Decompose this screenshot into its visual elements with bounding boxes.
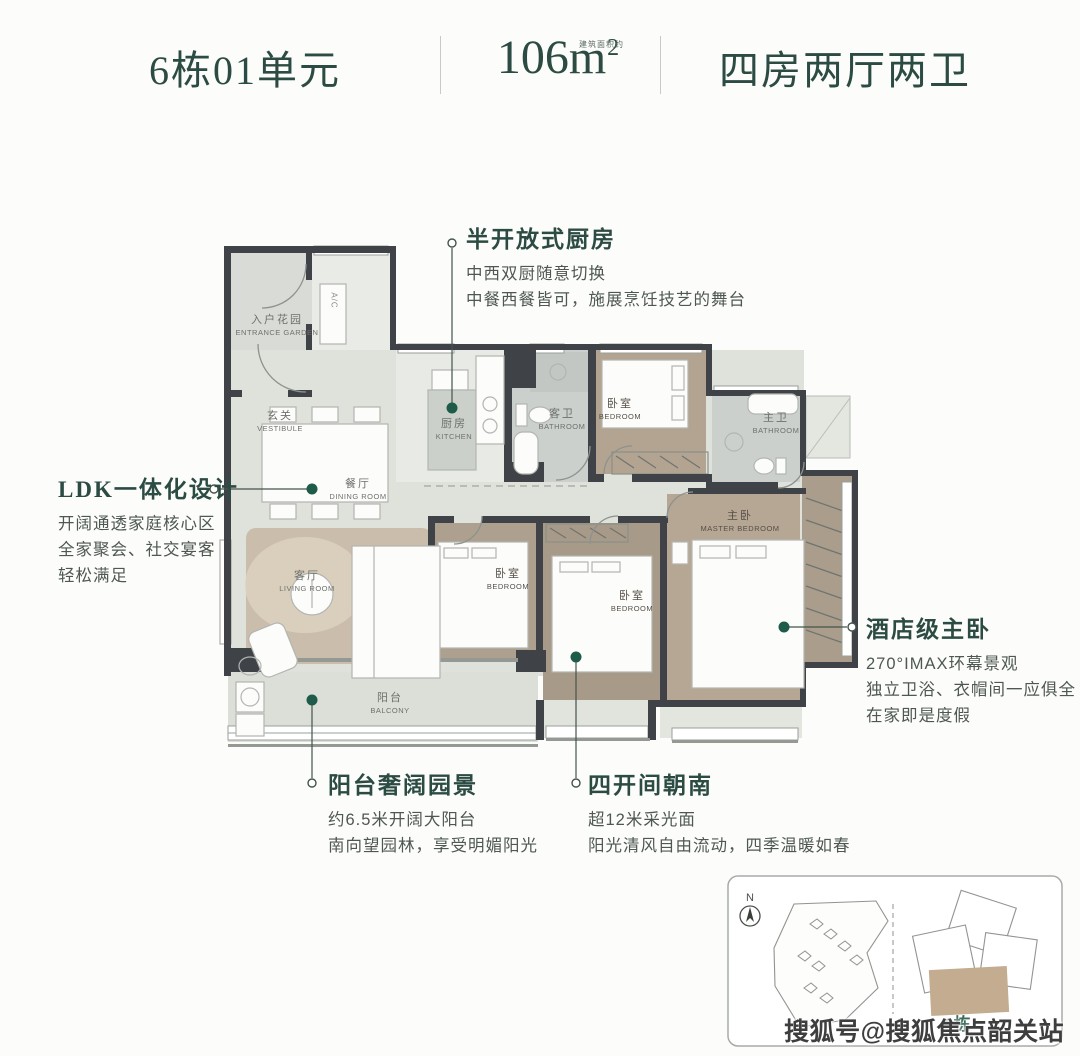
- room-label-guest-bath: 客卫 BATHROOM: [539, 408, 586, 431]
- room-label-living: 客厅 LIVING ROOM: [279, 570, 335, 593]
- room-label-bedroom-south: 卧室 BEDROOM: [611, 590, 653, 613]
- floorplan-page: 6栋01单元 建筑面积约 106m2 四房两厅两卫: [0, 0, 1080, 1056]
- room-label-ac: A/C: [330, 292, 339, 308]
- room-label-bedroom-mid: 卧室 BEDROOM: [487, 568, 529, 591]
- callout-south: 四开间朝南 超12米采光面 阳光清风自由流动，四季温暖如春: [588, 766, 851, 859]
- callout-kitchen: 半开放式厨房 中西双厨随意切换 中餐西餐皆可，施展烹饪技艺的舞台: [466, 220, 746, 313]
- callout-balcony: 阳台奢阔园景 约6.5米开阔大阳台 南向望园林，享受明媚阳光: [328, 766, 538, 859]
- callout-kitchen-title: 半开放式厨房: [466, 220, 746, 254]
- room-label-master-bedroom: 主卧 MASTER BEDROOM: [700, 510, 779, 533]
- callout-master-title: 酒店级主卧: [866, 610, 1076, 644]
- room-label-master-bath: 主卫 BATHROOM: [753, 412, 800, 435]
- room-label-bedroom-top: 卧室 BEDROOM: [599, 398, 641, 421]
- callout-master: 酒店级主卧 270°IMAX环幕景观 独立卫浴、衣帽间一应俱全 在家即是度假: [866, 610, 1076, 729]
- north-label: N: [746, 892, 754, 904]
- callout-balcony-title: 阳台奢阔园景: [328, 766, 538, 800]
- callout-south-title: 四开间朝南: [588, 766, 851, 800]
- room-label-entrance-garden: 入户花园 ENTRANCE GARDEN: [236, 314, 319, 337]
- callout-ldk: LDK一体化设计 开阔通透家庭核心区 全家聚会、社交宴客 轻松满足: [58, 470, 239, 589]
- room-label-balcony: 阳台 BALCONY: [370, 692, 409, 715]
- highlighted-unit: [929, 966, 1009, 1016]
- callout-ldk-title: LDK一体化设计: [58, 470, 239, 504]
- watermark: 搜狐号@搜狐焦点韶关站: [784, 1012, 1064, 1048]
- room-label-vestibule: 玄关 VESTIBULE: [257, 410, 303, 433]
- room-label-dining: 餐厅 DINING ROOM: [329, 478, 386, 501]
- room-label-kitchen: 厨房 KITCHEN: [436, 418, 472, 441]
